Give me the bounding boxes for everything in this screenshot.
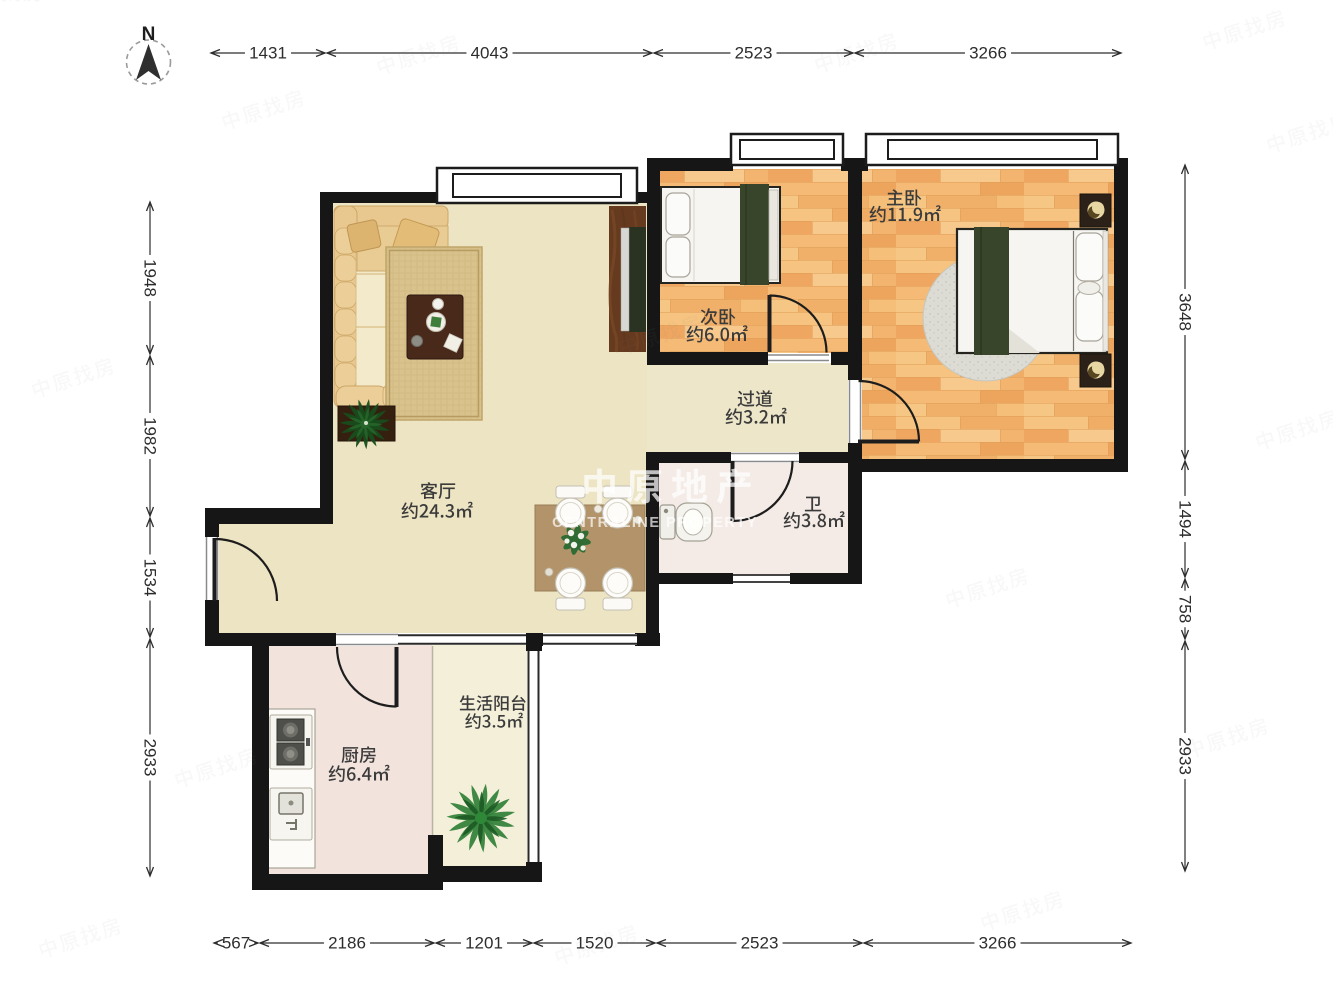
svg-text:567: 567 <box>222 934 250 953</box>
svg-text:3648: 3648 <box>1176 293 1195 331</box>
svg-text:1201: 1201 <box>465 934 503 953</box>
svg-text:2523: 2523 <box>741 934 779 953</box>
svg-text:2933: 2933 <box>141 739 160 777</box>
svg-text:758: 758 <box>1176 595 1195 623</box>
svg-text:2186: 2186 <box>328 934 366 953</box>
svg-text:2523: 2523 <box>735 44 773 63</box>
svg-text:CENTRALINE PROPERTY: CENTRALINE PROPERTY <box>552 515 758 531</box>
svg-text:1534: 1534 <box>141 559 160 597</box>
svg-text:1948: 1948 <box>141 259 160 297</box>
svg-text:3266: 3266 <box>979 934 1017 953</box>
svg-text:1431: 1431 <box>249 44 287 63</box>
svg-text:3266: 3266 <box>969 44 1007 63</box>
svg-text:2933: 2933 <box>1176 737 1195 775</box>
svg-text:4043: 4043 <box>471 44 509 63</box>
svg-text:1982: 1982 <box>141 417 160 455</box>
svg-text:1494: 1494 <box>1176 500 1195 538</box>
svg-text:N: N <box>142 24 156 45</box>
